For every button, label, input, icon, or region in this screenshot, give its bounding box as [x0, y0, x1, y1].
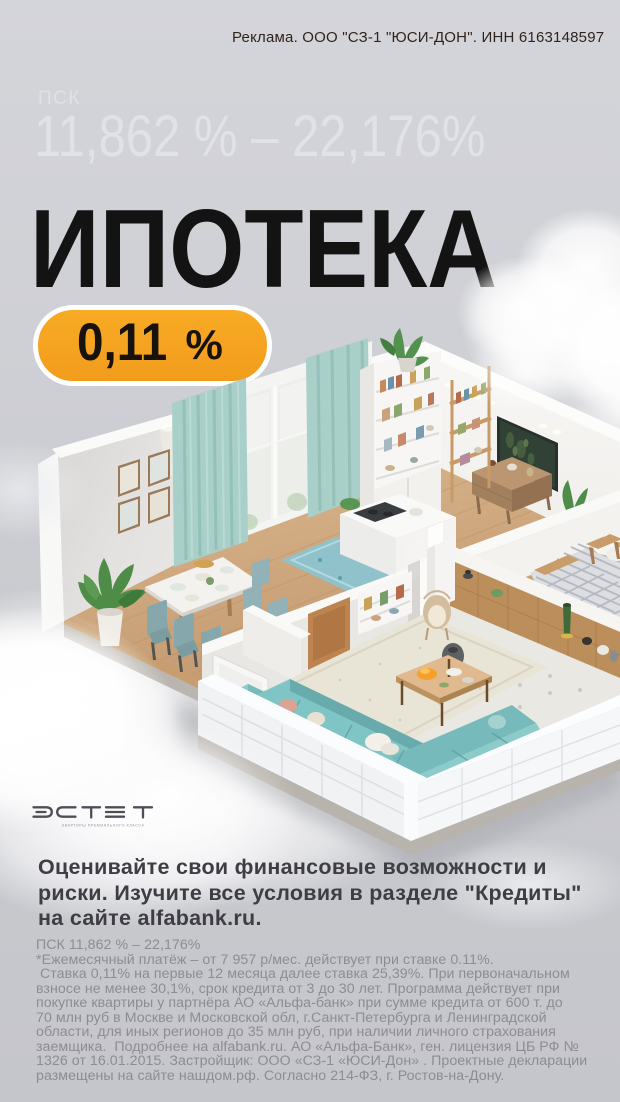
svg-text:КВАРТИРЫ ПРЕМИАЛЬНОГО КЛАССА: КВАРТИРЫ ПРЕМИАЛЬНОГО КЛАССА: [62, 824, 145, 828]
